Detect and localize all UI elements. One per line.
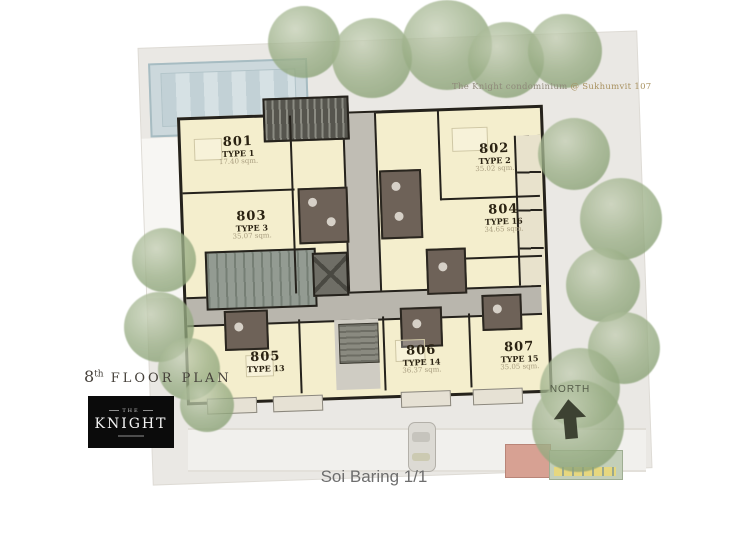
bathroom <box>224 309 269 351</box>
lobby-stairs <box>338 323 379 364</box>
tree <box>538 118 610 190</box>
unit-801-label: 801 TYPE 1 17.40 sqm. <box>208 134 269 167</box>
unit-807-label: 807 TYPE 15 35.05 sqm. <box>489 340 550 373</box>
floor-ordinal: th <box>94 370 103 380</box>
compass: NORTH <box>538 384 602 441</box>
tree <box>180 378 234 432</box>
floor-text: FLOOR PLAN <box>111 371 232 386</box>
unit-804-label: 804 TYPE 16 34.65 sqm. <box>473 202 534 235</box>
unit-802-label: 802 TYPE 2 35.02 sqm. <box>464 141 525 174</box>
tree <box>332 18 412 98</box>
unit-803-label: 803 TYPE 3 35.07 sqm. <box>221 209 282 242</box>
bathroom <box>298 187 350 245</box>
stair-core-top <box>262 96 349 143</box>
street-label: Soi Baring 1/1 <box>264 467 484 487</box>
tree <box>580 178 662 260</box>
logo-pre: THE <box>122 408 139 414</box>
logo-name: KNIGHT <box>95 416 168 432</box>
car <box>408 422 436 472</box>
logo-tagline <box>118 435 144 437</box>
logo-ornament <box>143 410 153 411</box>
floor-plan-page: 801 TYPE 1 17.40 sqm. 802 TYPE 2 35.02 s… <box>0 0 729 551</box>
bathroom <box>379 169 423 239</box>
balcony <box>273 395 324 413</box>
north-label: NORTH <box>538 384 602 395</box>
watermark-suffix: @ Sukhumvit 107 <box>570 82 651 92</box>
floor-number: 8 <box>84 367 94 386</box>
floor-plan-title: 8th FLOOR PLAN <box>84 367 232 386</box>
balcony <box>473 388 524 406</box>
tree <box>566 248 640 322</box>
watermark-main: The Knight condominium <box>452 82 567 92</box>
logo-ornament <box>109 410 119 411</box>
unit-806-label: 806 TYPE 14 36.37 sqm. <box>391 343 452 376</box>
knight-logo: THE KNIGHT <box>88 396 174 448</box>
tree <box>132 228 196 292</box>
stair-core <box>205 248 318 311</box>
bathroom <box>426 248 468 295</box>
tree <box>528 14 602 88</box>
watermark: The Knight condominium @ Sukhumvit 107 <box>452 82 652 92</box>
north-arrow-icon <box>550 396 590 443</box>
unit-805-label: 805 TYPE 13 <box>235 350 296 375</box>
elevator-shaft <box>312 252 350 297</box>
tree <box>268 6 340 78</box>
balcony <box>401 390 452 408</box>
bathroom <box>481 294 522 331</box>
